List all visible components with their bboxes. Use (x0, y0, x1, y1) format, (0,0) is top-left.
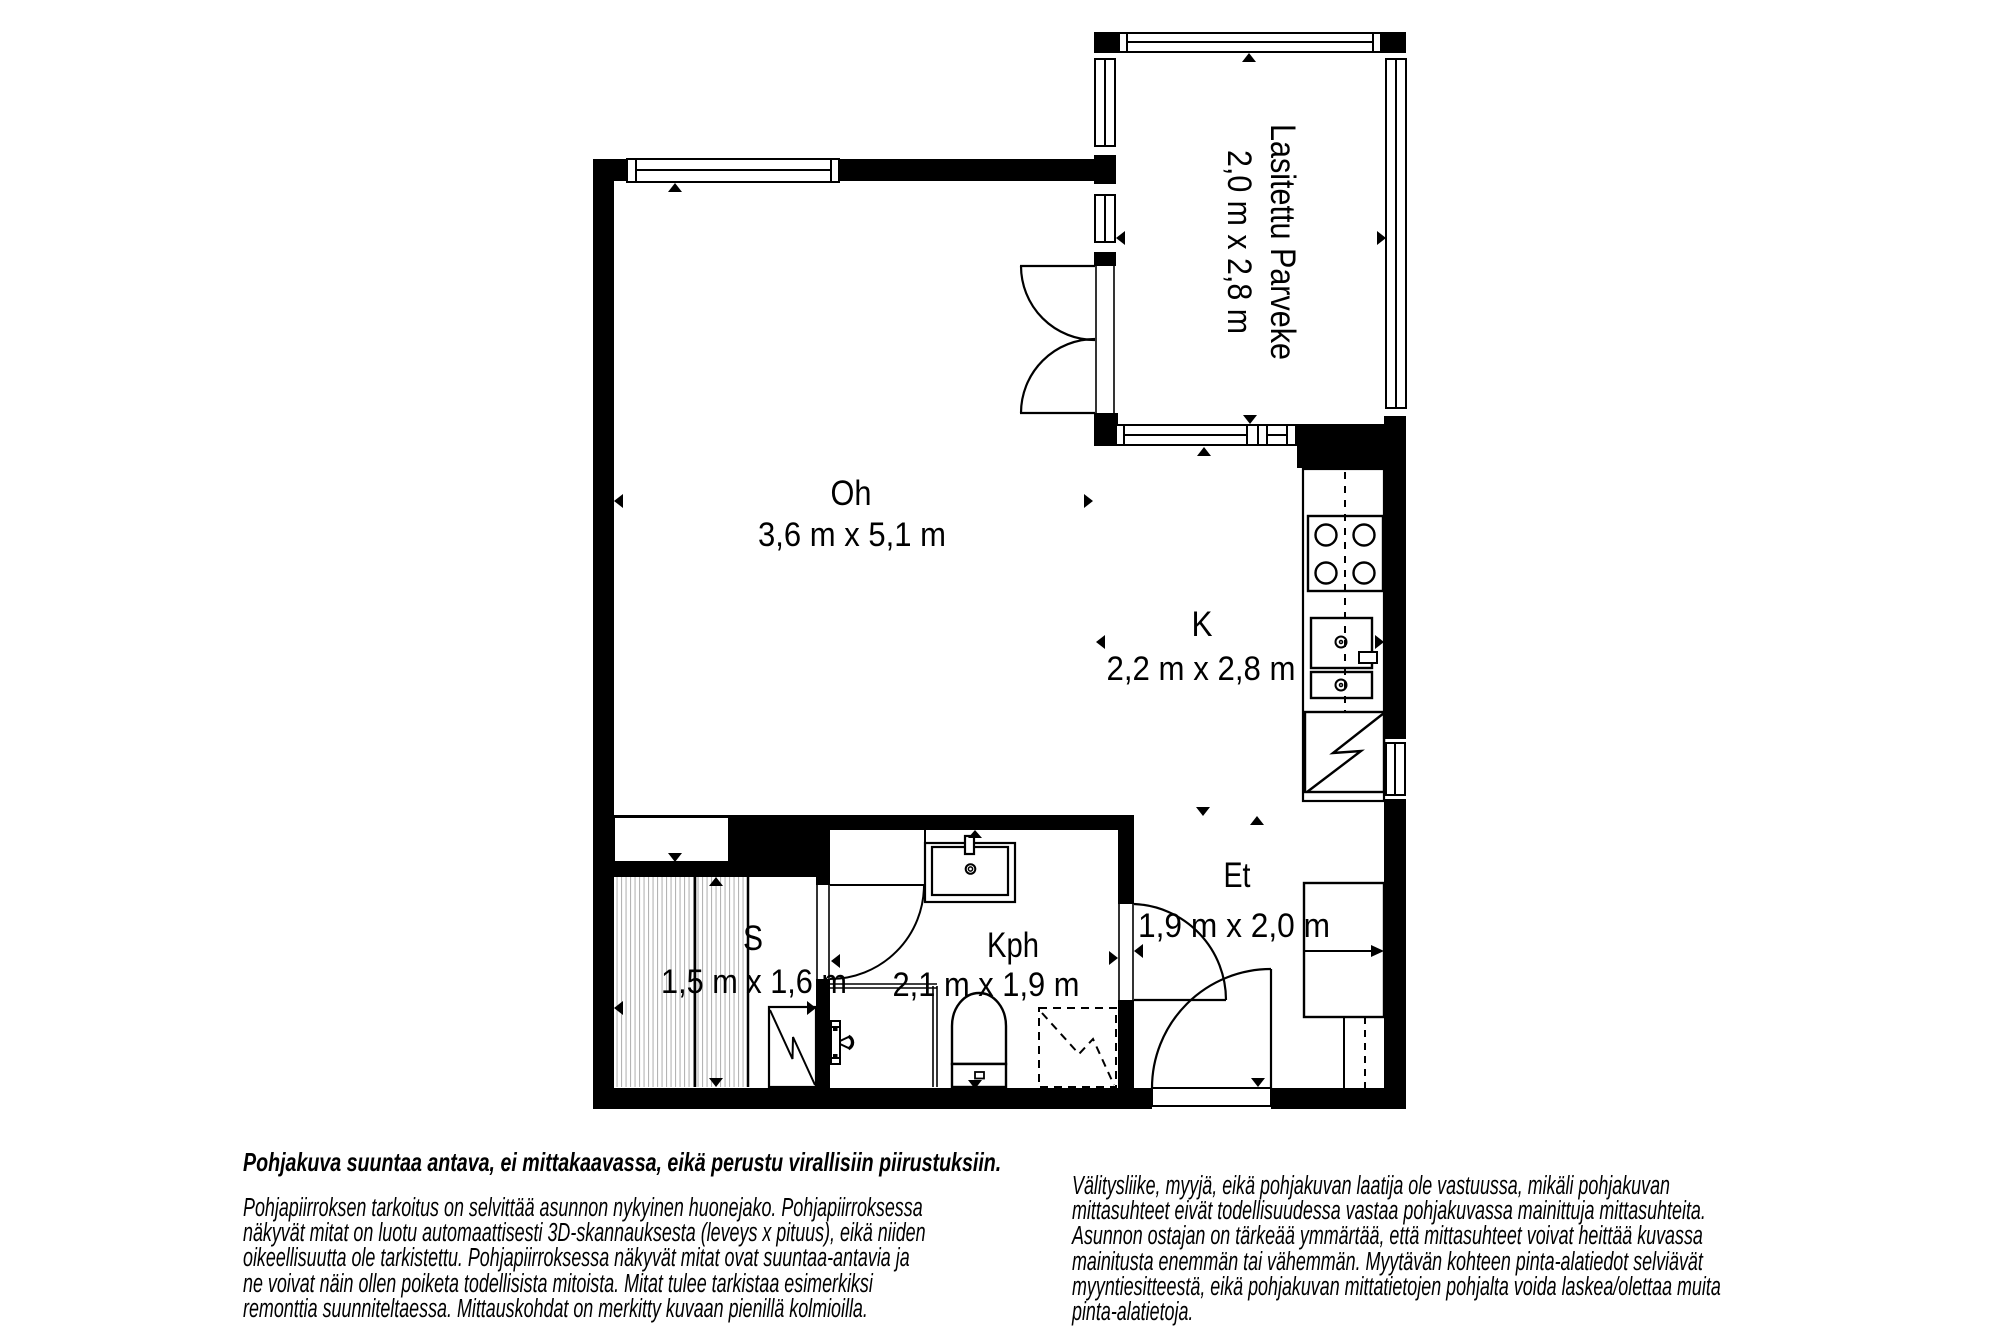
svg-text:K: K (1192, 605, 1213, 644)
svg-text:Kph: Kph (987, 926, 1039, 965)
svg-text:2,0 m x 2,8 m: 2,0 m x 2,8 m (1220, 150, 1258, 334)
svg-text:3,6 m x 5,1 m: 3,6 m x 5,1 m (758, 516, 946, 554)
svg-text:Lasitettu Parveke: Lasitettu Parveke (1263, 124, 1302, 360)
svg-text:S: S (743, 919, 763, 958)
svg-text:1,9 m x 2,0 m: 1,9 m x 2,0 m (1138, 907, 1330, 945)
svg-text:Et: Et (1224, 856, 1251, 895)
svg-text:2,1 m x 1,9 m: 2,1 m x 1,9 m (893, 966, 1080, 1004)
svg-text:1,5 m x 1,6 m: 1,5 m x 1,6 m (661, 963, 847, 1001)
svg-text:2,2 m x 2,8 m: 2,2 m x 2,8 m (1107, 650, 1296, 688)
svg-text:Oh: Oh (831, 474, 872, 513)
